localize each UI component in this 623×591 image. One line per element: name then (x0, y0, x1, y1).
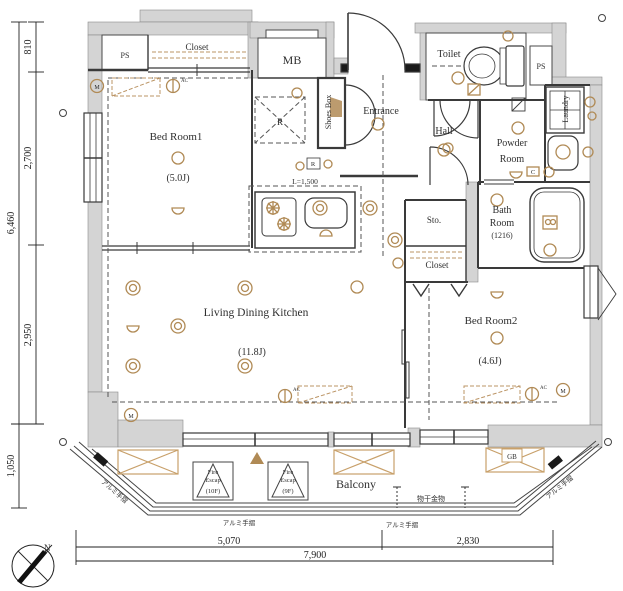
bedroom2-label: Bed Room2 (465, 315, 518, 327)
c-box-label: C (531, 169, 535, 176)
ac-zone-bedroom2 (464, 386, 520, 403)
bath-size-label: (1216) (491, 231, 513, 240)
bedroom2-area: (4.6J) (478, 356, 501, 367)
laundry-label: Laundry (561, 95, 570, 122)
balcony-marker (250, 452, 264, 464)
balcony-label: Balcony (336, 477, 376, 491)
ac-zone-ldk (298, 386, 352, 403)
fire-escape1-l3: (10F) (206, 488, 220, 495)
dim-6460: 6,460 (6, 212, 17, 235)
toilet-label: Toilet (437, 49, 460, 60)
ac-text-3: AC (540, 386, 548, 391)
closet-top-rails (152, 52, 246, 58)
dim-810: 810 (23, 40, 34, 55)
handrail-label-2: アルミ手摺 (386, 520, 419, 529)
floor-plan-page: Closet PS MB Toilet PS Shoes Box Entranc… (0, 0, 623, 591)
fire-escape2-l2: Escap (280, 477, 296, 484)
meter2-letter: M (128, 414, 134, 420)
window-ldk-1 (183, 433, 328, 446)
bedroom1-label: Bed Room1 (150, 131, 203, 143)
dim-2830: 2,830 (457, 536, 480, 547)
ps-right-label: PS (537, 62, 546, 71)
mb-label: MB (283, 53, 302, 67)
meter3-letter: M (560, 389, 566, 395)
closet-mid-rails (410, 252, 463, 258)
hanger-hook (451, 284, 467, 296)
hanger-hook (413, 284, 429, 296)
kitchen-length-label: L=1,500 (292, 177, 318, 186)
ps-left-label: PS (121, 51, 130, 60)
drain-box (548, 455, 563, 469)
ldk-area: (11.8J) (238, 347, 266, 358)
laundry-space (546, 87, 596, 133)
north-label: N (44, 543, 51, 553)
fire-escape2-l1: Fire (283, 469, 294, 476)
ldk-label: Living Dining Kitchen (204, 307, 309, 319)
washbasin (548, 136, 593, 170)
handrail-label-1: アルミ手摺 (223, 518, 256, 527)
entrance-door (341, 13, 420, 72)
shoes-box-label: Shoes Box (324, 95, 333, 129)
dim-7900: 7,900 (304, 550, 327, 561)
sink (305, 198, 347, 228)
window-bedroom1-left (84, 113, 102, 202)
ac-symbol-bedroom2 (526, 388, 539, 401)
dimension-labels: 810 2,700 2,950 6,460 1,050 5,070 2,830 … (6, 40, 479, 562)
ac-text-2: AC (293, 388, 301, 393)
hall-label: Hall (435, 126, 452, 137)
bath-label-2: Room (490, 218, 515, 229)
powder-label-2: Room (500, 154, 525, 165)
fire-escape2-l3: (9F) (282, 488, 293, 495)
refrigerator-label: R (277, 117, 283, 127)
number-tag (393, 258, 403, 268)
entrance-label: Entrance (363, 106, 399, 117)
mb-door (266, 30, 318, 38)
fire-escape1-l1: Fire (208, 469, 219, 476)
gas-box-label: GB (507, 453, 517, 461)
bedroom1-area: (5.0J) (166, 173, 189, 184)
laundry-pole-label: 物干金物 (417, 494, 445, 503)
ac-text-1: AC (181, 79, 189, 84)
outlet-r-label: R (311, 161, 316, 168)
meter1-letter: M (94, 85, 100, 91)
closet-top-label: Closet (185, 42, 209, 52)
storage-label: Sto. (427, 215, 441, 225)
dim-1050: 1,050 (6, 455, 17, 478)
dim-2950: 2,950 (23, 324, 34, 347)
bath-label-1: Bath (493, 205, 512, 216)
closet-mid-label: Closet (425, 260, 449, 270)
bathtub (530, 188, 584, 262)
floor-plan-drawing: Closet PS MB Toilet PS Shoes Box Entranc… (0, 0, 623, 591)
dim-2700: 2,700 (23, 147, 34, 170)
ac-symbol-ldk (279, 390, 292, 403)
stove (262, 198, 296, 236)
powder-label-1: Powder (497, 138, 528, 149)
ac-symbol-bedroom1 (167, 80, 180, 93)
window-ldk-2 (334, 433, 410, 446)
window-bedroom2-bottom (420, 430, 488, 444)
refrigerator-space (255, 88, 305, 143)
ac-zone-bedroom1 (112, 78, 160, 96)
balcony-units (118, 448, 544, 474)
dim-5070: 5,070 (218, 536, 241, 547)
windows (84, 113, 616, 446)
fire-escape1-l2: Escap (205, 477, 221, 484)
